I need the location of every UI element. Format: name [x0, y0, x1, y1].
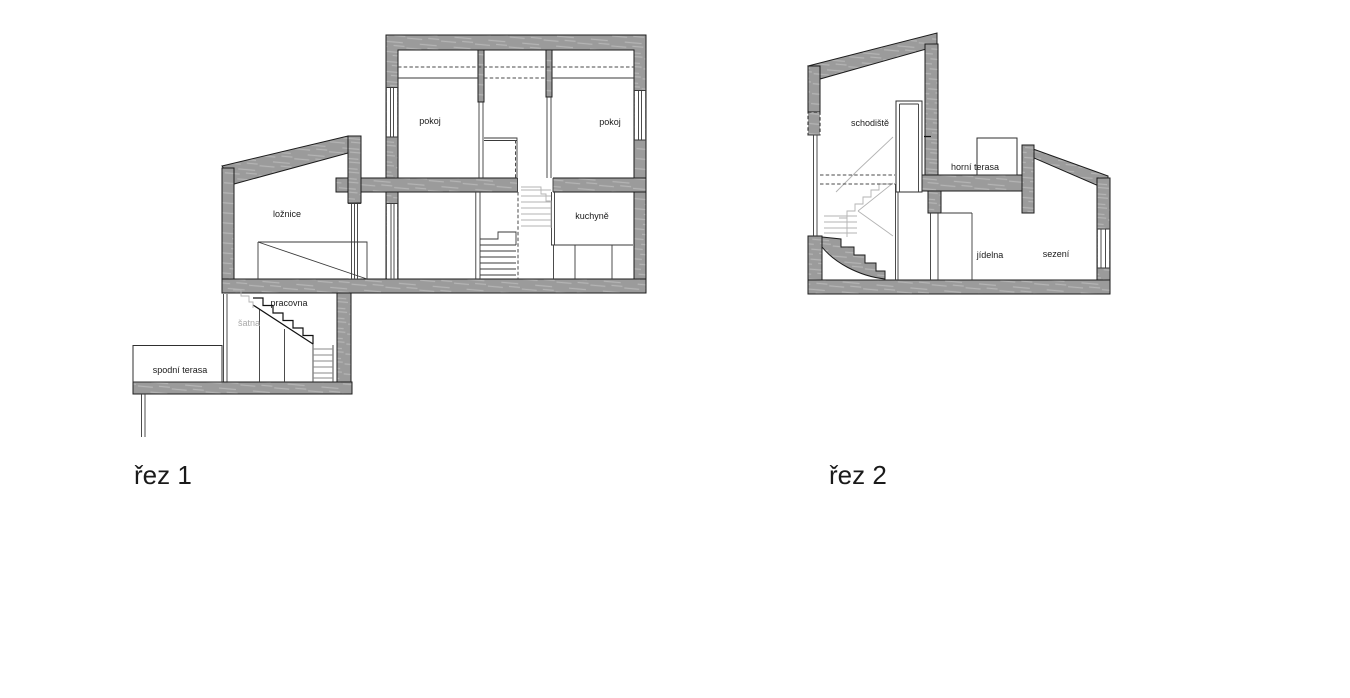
stair-tower-left-wall: [808, 66, 820, 112]
dining-counter: [941, 213, 972, 280]
seating-left-wall: [1022, 145, 1034, 213]
stair-stringer-wall: [476, 192, 480, 279]
basement-right-wall: [337, 293, 351, 382]
window-opening: [635, 91, 645, 140]
basement-partitions: [260, 309, 334, 382]
room-label-spodni-terasa: spodní terasa: [153, 365, 208, 375]
ground-slab: [808, 280, 1110, 294]
stair-treads: [480, 245, 516, 275]
room-label-pracovna: pracovna: [270, 298, 307, 308]
stair-tower-wall-hidden-part: [808, 112, 820, 135]
stair-soffit-line: [253, 305, 313, 344]
section-title-rez-2: řez 2: [829, 460, 887, 490]
sections-drawing: pokoj pokoj ložnice kuchyně pracovna spo…: [0, 0, 1350, 698]
room-label-jidelna: jídelna: [976, 250, 1004, 260]
stair-direction-lines: [858, 183, 893, 236]
hidden-flight-treads: [521, 190, 551, 226]
room-label-loznice: ložnice: [273, 209, 301, 219]
room-label-schodiste: schodiště: [851, 118, 889, 128]
bedroom-right-column: [348, 136, 361, 203]
room-label-pokoj-right: pokoj: [599, 117, 621, 127]
curved-stair-flight: [822, 237, 885, 279]
basement-glass-wall: [224, 294, 228, 382]
room-label-horni-terasa: horní terasa: [951, 162, 999, 172]
seating-roof-slab: [1022, 145, 1108, 190]
stair-top-steps: [480, 232, 516, 245]
window-opening: [387, 88, 397, 137]
glass-door-opening: [387, 204, 397, 279]
room-label-satna: šatna: [238, 318, 260, 328]
rez1-dashed-lines: [398, 67, 634, 279]
rez1-openings: [224, 88, 647, 382]
entry-wall-stub: [928, 191, 941, 213]
hidden-flight-edge: [521, 187, 551, 228]
stair-enclosure-wall: [552, 192, 555, 245]
entry-glass-door: [931, 213, 939, 280]
section-rez-2: schodiště horní terasa jídelna sezení ře…: [808, 33, 1110, 490]
kitchen-counter: [551, 245, 633, 279]
stair-tower-roof: [808, 33, 937, 79]
upper-closet: [484, 138, 517, 178]
architectural-section-sheet: pokoj pokoj ložnice kuchyně pracovna spo…: [0, 0, 1350, 698]
room-label-sezeni: sezení: [1043, 249, 1070, 259]
lower-flight-treads: [313, 349, 333, 378]
room-label-pokoj-left: pokoj: [419, 116, 441, 126]
mid-floor-slab: [336, 178, 646, 192]
ground-floor-slab: [222, 279, 646, 293]
section-title-rez-1: řez 1: [134, 460, 192, 490]
window-opening: [1098, 229, 1109, 268]
hidden-flight-treads: [824, 216, 857, 233]
basement-bottom-slab: [133, 382, 352, 394]
left-glass-wall: [808, 135, 820, 236]
stair-tower-right-wall: [925, 44, 938, 183]
bedroom-left-wall: [222, 168, 234, 293]
rez2-dashed-lines: [820, 175, 895, 184]
room-label-kuchyne: kuchyně: [575, 211, 609, 221]
partition-stub: [478, 50, 484, 102]
terrace-support-post: [142, 394, 146, 437]
stairwell-wall: [896, 184, 899, 280]
lower-left-wall: [808, 236, 822, 280]
section-rez-1: pokoj pokoj ložnice kuchyně pracovna spo…: [133, 35, 646, 490]
partition-stub: [546, 50, 552, 97]
lower-terrace-outline: [133, 346, 222, 383]
bedroom-roof-slab: [222, 136, 348, 184]
rez2-hidden-lines: [824, 137, 893, 237]
